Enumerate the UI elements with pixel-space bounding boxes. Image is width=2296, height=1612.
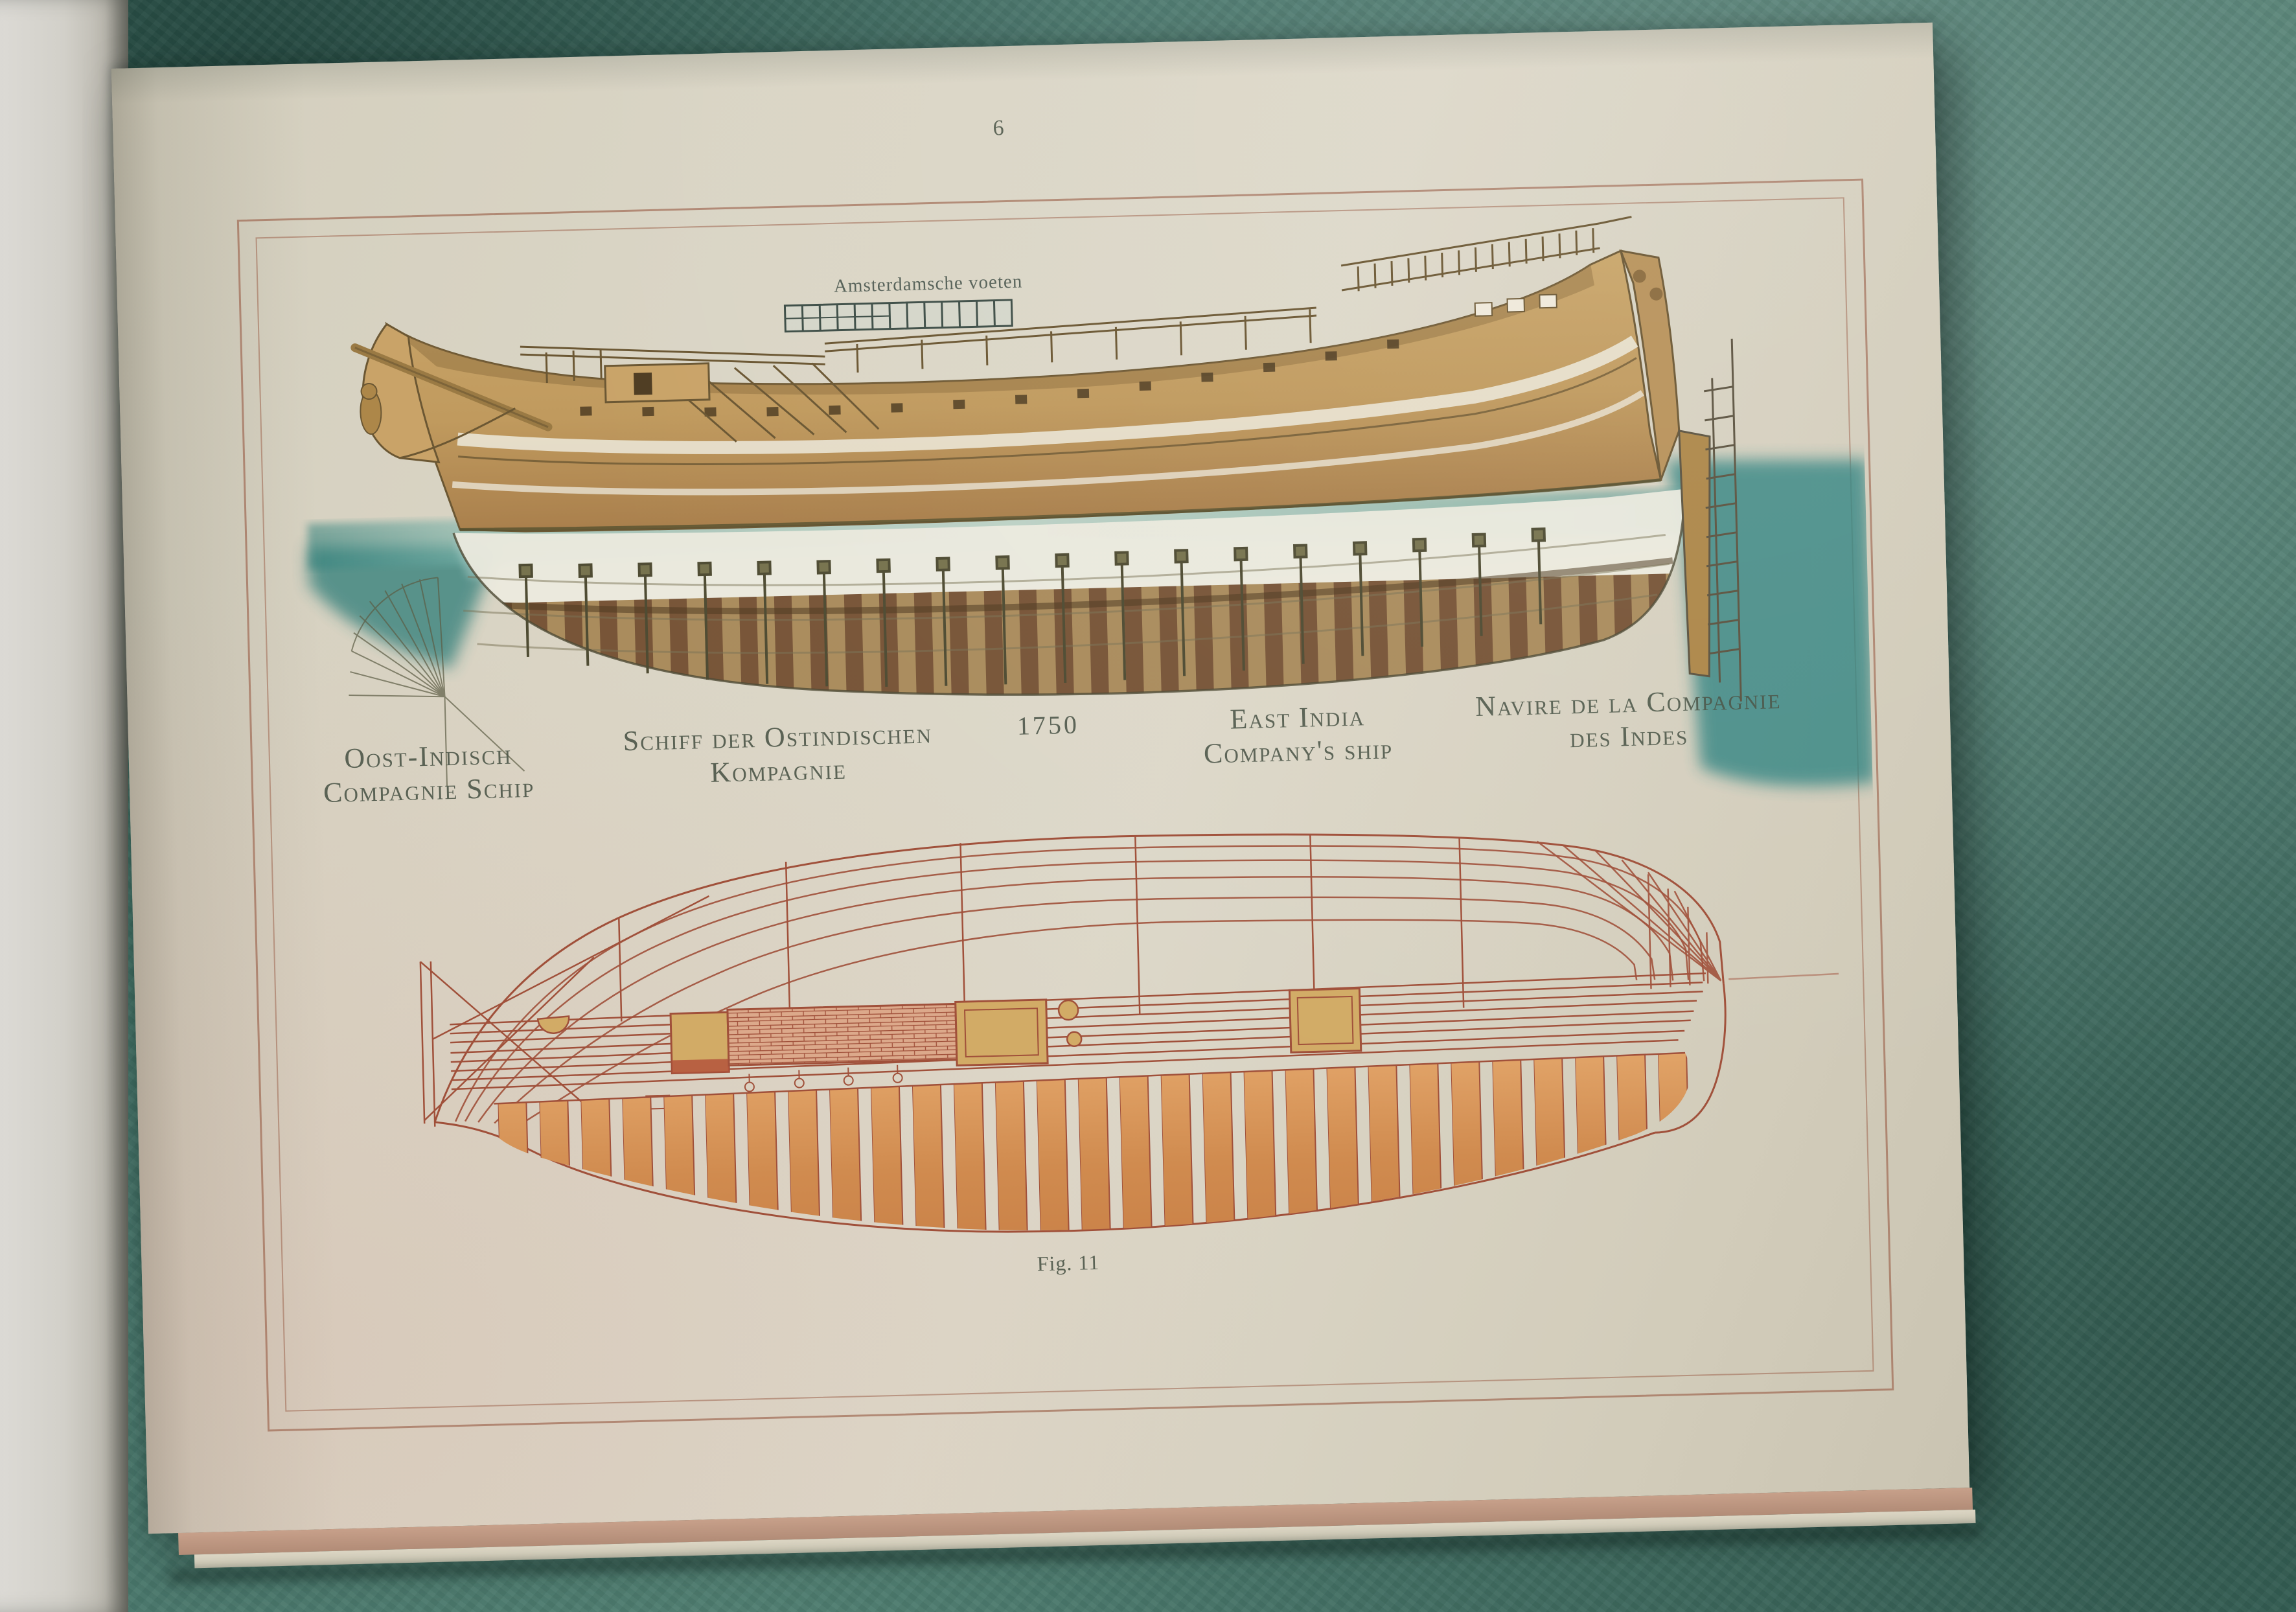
photo-of-open-book: { "page": { "number": "6", "figure_capti… (0, 0, 2296, 1612)
page-number: 6 (993, 116, 1004, 141)
caption-dutch: Oost-Indisch Compagnie Schip (322, 737, 535, 810)
caption-dutch-line2: Compagnie Schip (323, 771, 534, 810)
caption-english: East India Company's ship (1202, 698, 1394, 770)
caption-french: Navire de la Compagnie des Indes (1475, 682, 1783, 757)
rudder (1679, 430, 1716, 677)
figure-caption: Fig. 11 (1037, 1250, 1099, 1276)
caption-dutch-line1: Oost-Indisch (322, 737, 534, 776)
hull-plan-drawing (418, 818, 1845, 1266)
book-page: 6 (111, 23, 1969, 1534)
left-page-edge-stack (0, 0, 128, 1612)
plan-bow-stem (419, 896, 715, 1127)
plan-galley-bricks (728, 1004, 957, 1065)
caption-english-line2: Company's ship (1203, 732, 1393, 770)
caption-year: 1750 (1016, 709, 1079, 741)
caption-german: Schiff der Ostindischen Kompagnie (623, 717, 934, 792)
caption-english-line1: East India (1202, 698, 1392, 737)
scale-bar (785, 300, 1012, 332)
